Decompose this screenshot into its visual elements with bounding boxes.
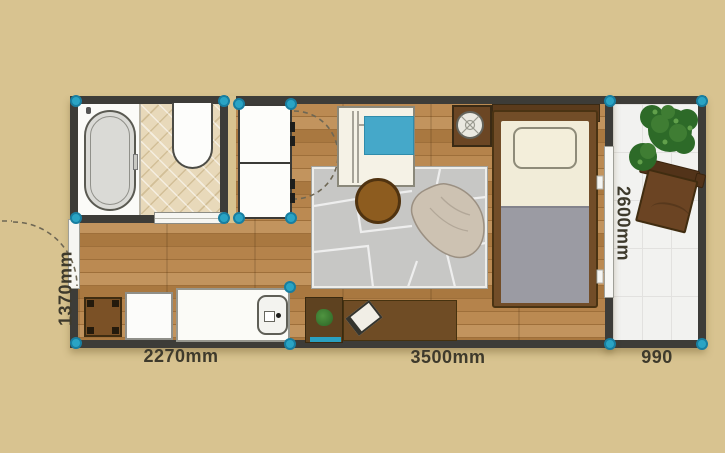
table-leg [87,327,94,334]
vertex-marker[interactable] [285,212,297,224]
desk-plant-icon [316,309,333,326]
dimension-label-bottom-right: 990 [627,347,687,368]
bathtub-faucet-icon [86,107,91,114]
dimension-label-bottom-left: 2270mm [131,346,231,367]
vertex-marker[interactable] [696,95,708,107]
vertex-marker[interactable] [218,212,230,224]
faucet-icon [276,313,281,318]
chair-seam [648,199,692,228]
vertex-marker[interactable] [604,95,616,107]
sofa-armrest-line [357,111,359,183]
vertex-marker[interactable] [284,338,296,350]
vertex-marker[interactable] [233,98,245,110]
sofa-armrest-line [352,111,354,183]
vertex-marker[interactable] [604,338,616,350]
table-leg [112,327,119,334]
vertex-marker[interactable] [70,337,82,349]
dimension-label-right: 2600mm [613,182,634,266]
bathroom-floor-divider [139,104,141,215]
vertex-marker[interactable] [285,98,297,110]
washing-machine[interactable] [125,292,173,340]
floor-plan-canvas: 1370mm 2270mm 3500mm 990 2600mm [0,0,725,453]
bathtub[interactable] [84,110,136,211]
coffee-table[interactable] [355,178,401,224]
nightstand[interactable] [452,105,492,147]
hinge [290,179,295,189]
dimension-label-bottom-center: 3500mm [398,347,498,368]
table-leg [112,300,119,307]
bathtub-rim [90,116,130,205]
storage-cabinet[interactable] [238,104,292,219]
vertex-marker[interactable] [70,95,82,107]
hinge [290,122,295,132]
vertex-marker[interactable] [233,212,245,224]
sofa[interactable] [337,106,415,187]
sink[interactable] [257,295,288,335]
teal-accent-strip [310,337,341,342]
table-leg [87,300,94,307]
bed-blanket [501,206,589,303]
kitchen-table[interactable] [84,297,122,337]
hinge [290,193,295,203]
vertex-marker[interactable] [218,95,230,107]
vertex-marker[interactable] [70,212,82,224]
vertex-marker[interactable] [284,281,296,293]
bathtub-handle [133,154,138,170]
vertex-marker[interactable] [696,338,708,350]
hinge [290,136,295,146]
bathroom-sliding-door[interactable] [154,212,223,224]
shower-tray[interactable] [172,103,213,169]
module-gap [228,96,236,223]
dimension-label-left: 1370mm [56,249,77,329]
sofa-cushion [364,116,414,155]
soap-dish-icon [264,311,275,322]
pillow [513,127,577,169]
